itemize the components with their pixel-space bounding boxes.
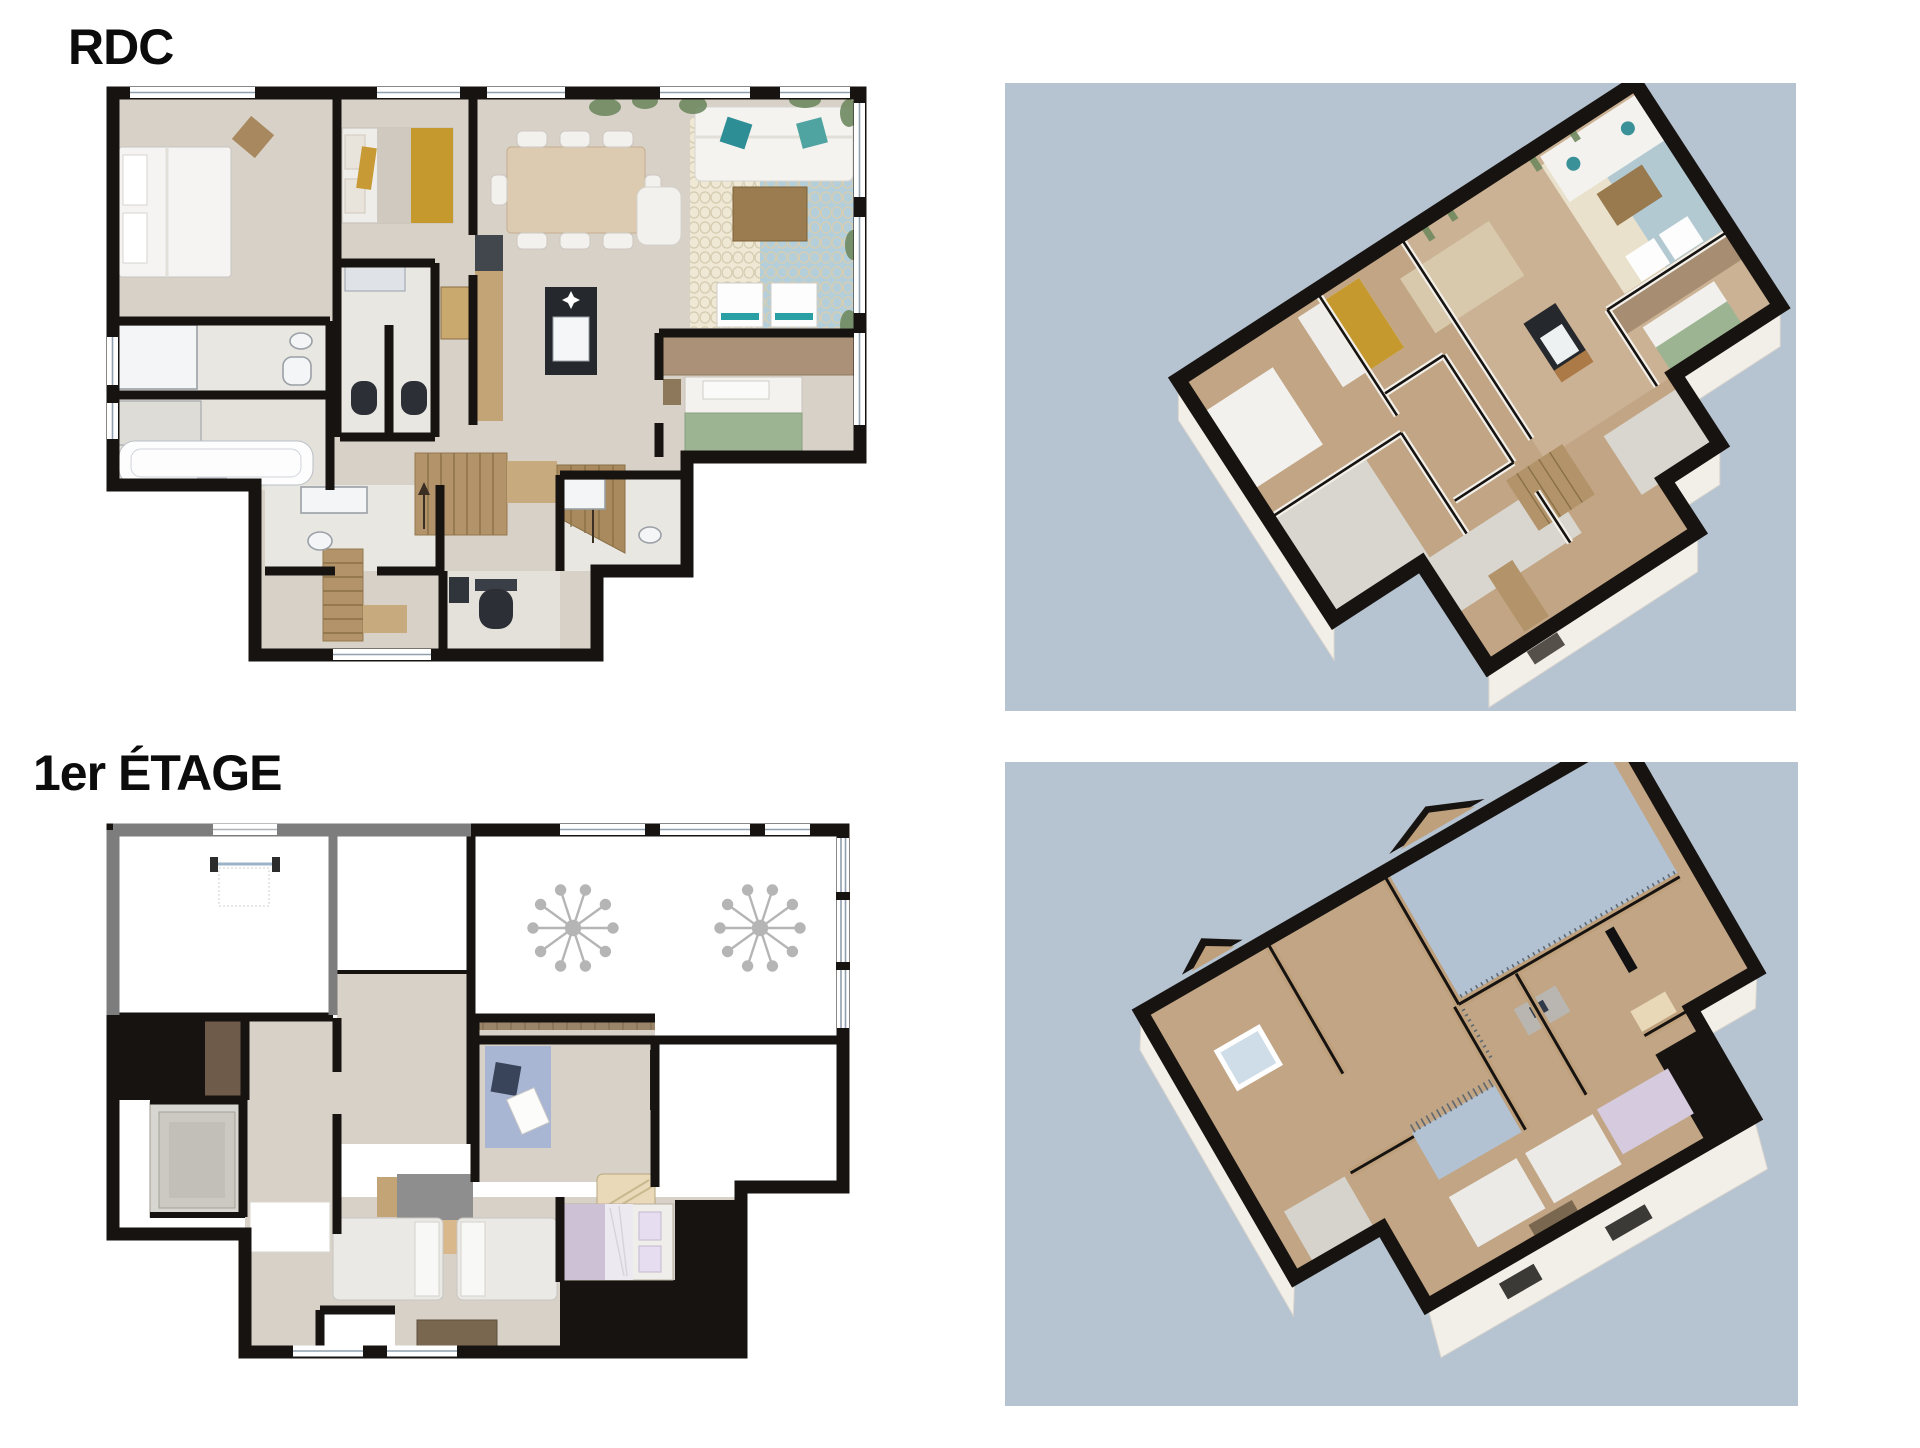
- double-bed-mustard: [342, 128, 453, 223]
- ground-floor-title: RDC: [68, 22, 173, 72]
- armchair: [637, 187, 681, 245]
- tv-cabinet: [397, 1174, 473, 1220]
- stone-shower-room: [150, 1102, 243, 1217]
- lavender-bedroom: [563, 1204, 673, 1280]
- sofa: [695, 107, 853, 181]
- desk-chair: [491, 1062, 522, 1096]
- rdc-3d-view: [1005, 83, 1796, 711]
- etage-2d-floorplan: [105, 822, 855, 1397]
- dining-table: [491, 131, 661, 249]
- first-floor-title: 1er ÉTAGE: [33, 748, 282, 798]
- shelf: [377, 1177, 397, 1217]
- floorplan-sheet: RDC: [0, 0, 1920, 1448]
- rdc-2d-floorplan: [105, 85, 870, 670]
- coffee-table: [733, 187, 807, 241]
- kitchen-island: [545, 287, 597, 375]
- etage-3d-view: [1005, 762, 1798, 1406]
- double-bed-white: [113, 145, 231, 279]
